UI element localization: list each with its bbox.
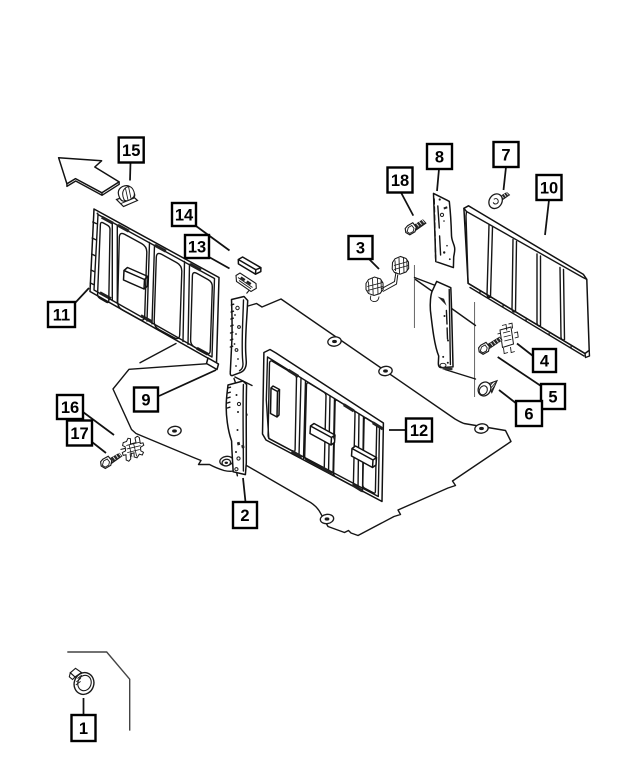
svg-text:17: 17 — [70, 425, 88, 443]
svg-text:10: 10 — [540, 180, 558, 198]
svg-text:14: 14 — [175, 207, 194, 225]
svg-text:9: 9 — [141, 392, 150, 410]
svg-text:16: 16 — [61, 399, 79, 417]
svg-text:6: 6 — [524, 406, 533, 424]
svg-text:8: 8 — [435, 149, 444, 167]
svg-text:15: 15 — [122, 142, 140, 160]
svg-text:7: 7 — [501, 147, 510, 165]
svg-text:18: 18 — [391, 172, 409, 190]
svg-text:4: 4 — [540, 353, 550, 371]
svg-text:2: 2 — [240, 507, 249, 525]
svg-text:13: 13 — [188, 239, 206, 257]
svg-text:3: 3 — [356, 240, 365, 258]
svg-text:11: 11 — [53, 307, 70, 325]
svg-text:1: 1 — [79, 720, 88, 738]
svg-text:12: 12 — [410, 422, 428, 440]
svg-text:5: 5 — [548, 389, 557, 407]
